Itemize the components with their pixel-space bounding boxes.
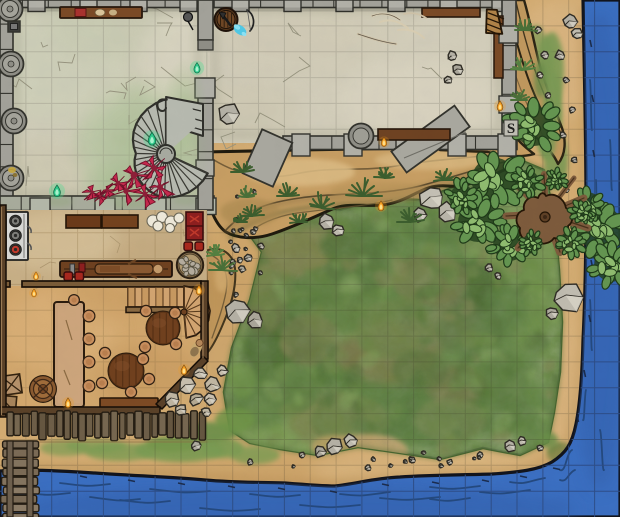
svg-text:S: S <box>507 121 515 137</box>
